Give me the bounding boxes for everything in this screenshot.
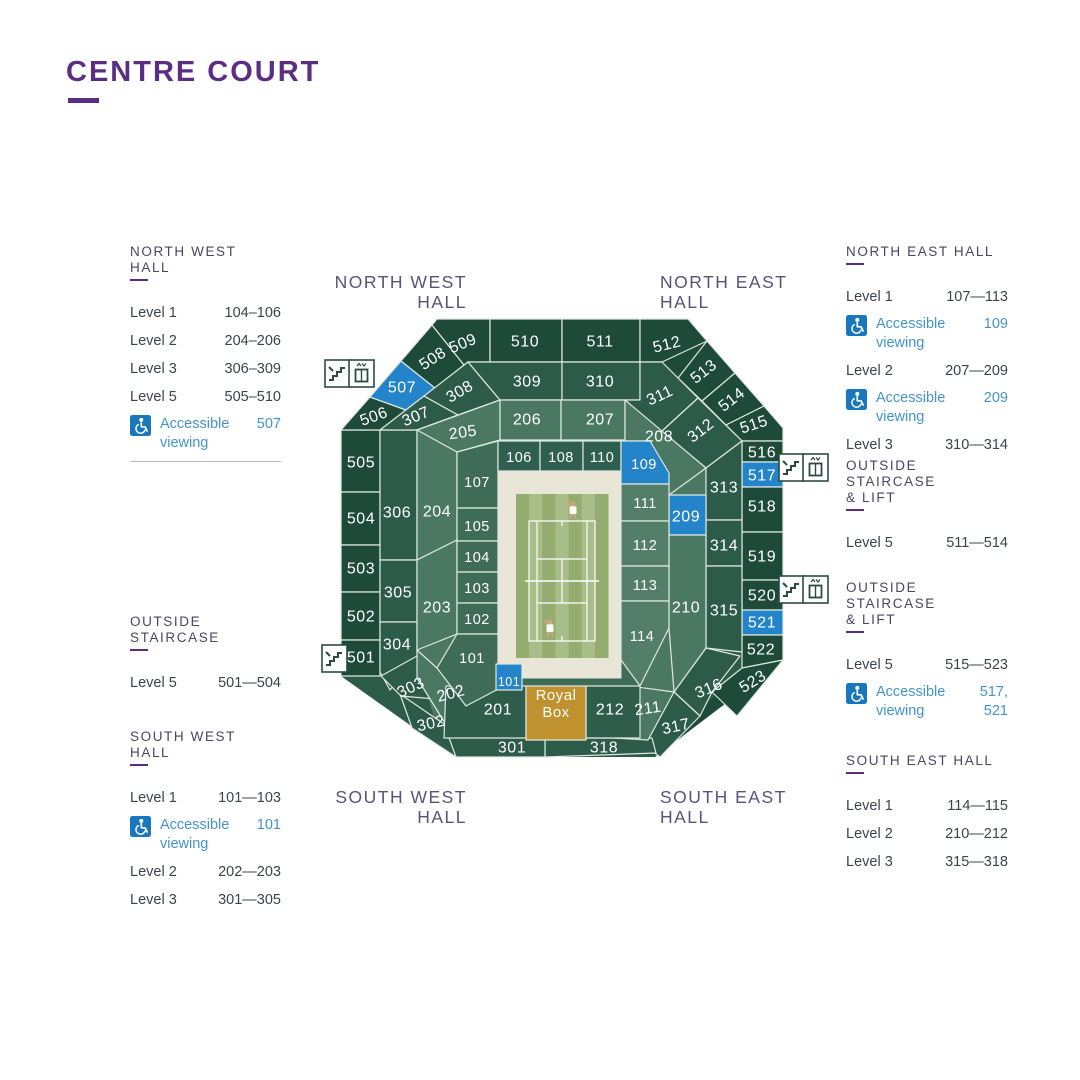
legend-row: Level 3310—314 bbox=[846, 435, 1008, 455]
accessible-label: Accessible viewing bbox=[160, 415, 244, 453]
section-label: 502 bbox=[347, 609, 375, 626]
accessible-label: Accessible viewing bbox=[876, 389, 960, 427]
centre-court-page: CENTRE COURT 505504503502501506507508509… bbox=[0, 0, 1080, 1080]
sections-range-value: 515—523 bbox=[945, 655, 1008, 675]
section-label: 521 bbox=[748, 615, 776, 632]
level-label: Level 1 bbox=[130, 303, 177, 323]
level-label: Level 5 bbox=[846, 533, 893, 553]
header-accent-dash bbox=[846, 631, 864, 633]
sections-range-value: 202—203 bbox=[218, 862, 281, 882]
lift-icon bbox=[803, 454, 828, 481]
section-label: 103 bbox=[464, 581, 490, 597]
section-label: 507 bbox=[388, 380, 416, 397]
stairs-icon bbox=[322, 645, 347, 672]
level-label: Level 5 bbox=[846, 655, 893, 675]
accessible-label: Accessible viewing bbox=[876, 315, 960, 353]
legend-row: Level 1107—113 bbox=[846, 287, 1008, 307]
legend-row: Level 2210—212 bbox=[846, 824, 1008, 844]
legend-divider bbox=[130, 461, 281, 462]
hall-label: SOUTH EAST HALL bbox=[660, 788, 860, 827]
legend-header: NORTH EAST HALL bbox=[846, 244, 1008, 265]
section-label: 511 bbox=[586, 334, 613, 351]
section-label: 206 bbox=[513, 412, 541, 429]
section-label: 520 bbox=[748, 588, 776, 605]
section-label: 209 bbox=[672, 509, 700, 526]
level-label: Level 3 bbox=[846, 435, 893, 455]
accessible-label: Accessible viewing bbox=[160, 816, 244, 854]
section-label: 106 bbox=[506, 450, 532, 466]
header-accent-dash bbox=[130, 649, 148, 651]
legend-group-right: OUTSIDE STAIRCASE & LIFTLevel 5511—514 bbox=[846, 458, 1008, 561]
accessible-sections-value: 517, 521 bbox=[955, 683, 1008, 721]
header-accent-dash bbox=[846, 772, 864, 774]
lift-icon bbox=[803, 576, 828, 603]
legend-header: OUTSIDE STAIRCASE & LIFT bbox=[846, 580, 1008, 633]
section-label: 108 bbox=[548, 450, 574, 466]
level-label: Level 3 bbox=[846, 852, 893, 872]
wheelchair-icon bbox=[846, 315, 867, 336]
section-label: 105 bbox=[464, 519, 490, 535]
level-label: Level 3 bbox=[130, 890, 177, 910]
accessible-viewing-row: Accessible viewing507 bbox=[130, 415, 281, 453]
section-label: 315 bbox=[710, 603, 738, 620]
section-label: 313 bbox=[710, 480, 738, 497]
sections-range-value: 501—504 bbox=[218, 673, 281, 693]
section-label: 501 bbox=[347, 650, 375, 667]
sections-range-value: 104–106 bbox=[225, 303, 281, 323]
header-accent-dash bbox=[130, 279, 148, 281]
accessible-sections-value: 209 bbox=[984, 389, 1008, 427]
legend-row: Level 1104–106 bbox=[130, 303, 281, 323]
wheelchair-icon bbox=[846, 683, 867, 704]
section-label: 208 bbox=[645, 429, 673, 446]
legend-group-left: OUTSIDE STAIRCASELevel 5501—504 bbox=[130, 614, 281, 701]
section-label: 207 bbox=[586, 412, 614, 429]
legend-row: Level 5515—523 bbox=[846, 655, 1008, 675]
section-label: 102 bbox=[464, 612, 490, 628]
section-306[interactable] bbox=[380, 430, 417, 560]
legend-header: OUTSIDE STAIRCASE & LIFT bbox=[846, 458, 1008, 511]
grass-stripe bbox=[529, 494, 543, 658]
wheelchair-icon bbox=[846, 389, 867, 410]
accessible-viewing-row: Accessible viewing109 bbox=[846, 315, 1008, 353]
section-label: 503 bbox=[347, 561, 375, 578]
stairs-icon bbox=[779, 454, 804, 481]
sections-range-value: 107—113 bbox=[946, 287, 1008, 307]
section-label: 204 bbox=[423, 504, 451, 521]
section-label: 504 bbox=[347, 511, 375, 528]
section-label: 304 bbox=[383, 637, 411, 654]
legend-header: SOUTH EAST HALL bbox=[846, 753, 1008, 774]
sections-range-value: 315—318 bbox=[945, 852, 1008, 872]
section-label: 306 bbox=[383, 505, 411, 522]
section-label: 109 bbox=[631, 457, 657, 473]
sections-range-value: 511—514 bbox=[946, 533, 1008, 553]
sections-range-value: 301—305 bbox=[218, 890, 281, 910]
level-label: Level 2 bbox=[846, 361, 893, 381]
section-label: 111 bbox=[633, 496, 657, 512]
level-label: Level 2 bbox=[130, 862, 177, 882]
legend-row: Level 1114—115 bbox=[846, 796, 1008, 816]
legend-row: Level 2207—209 bbox=[846, 361, 1008, 381]
grass-stripe bbox=[516, 494, 530, 658]
sections-range-value: 505–510 bbox=[225, 387, 281, 407]
legend-group-right: NORTH EAST HALLLevel 1107—113Accessible … bbox=[846, 244, 1008, 463]
hall-label: NORTH EAST HALL bbox=[660, 273, 860, 312]
legend-row: Level 2202—203 bbox=[130, 862, 281, 882]
grass-stripe bbox=[595, 494, 609, 658]
level-label: Level 5 bbox=[130, 387, 177, 407]
sections-range-value: 101—103 bbox=[218, 788, 281, 808]
legend-row: Level 5505–510 bbox=[130, 387, 281, 407]
accessible-label: Accessible viewing bbox=[876, 683, 955, 721]
accessible-sections-value: 101 bbox=[257, 816, 281, 854]
legend-row: Level 1101—103 bbox=[130, 788, 281, 808]
section-label: 107 bbox=[464, 475, 490, 491]
legend-row: Level 5511—514 bbox=[846, 533, 1008, 553]
section-label: 510 bbox=[511, 334, 539, 351]
section-label: 518 bbox=[748, 499, 776, 516]
section-label: 212 bbox=[596, 702, 624, 719]
legend-group-left: NORTH WEST HALLLevel 1104–106Level 2204–… bbox=[130, 244, 281, 462]
header-accent-dash bbox=[130, 764, 148, 766]
section-label: 301 bbox=[498, 740, 526, 757]
sections-range-value: 204–206 bbox=[225, 331, 281, 351]
section-label: 517 bbox=[748, 468, 776, 485]
wheelchair-icon bbox=[130, 415, 151, 436]
legend-row: Level 3301—305 bbox=[130, 890, 281, 910]
grass-stripe bbox=[582, 494, 596, 658]
level-label: Level 3 bbox=[130, 359, 177, 379]
legend-row: Level 2204–206 bbox=[130, 331, 281, 351]
legend-group-right: SOUTH EAST HALLLevel 1114—115Level 2210—… bbox=[846, 753, 1008, 880]
section-label: 114 bbox=[630, 629, 655, 645]
section-label: 201 bbox=[484, 702, 512, 719]
level-label: Level 2 bbox=[130, 331, 177, 351]
grass-stripe bbox=[542, 494, 556, 658]
level-label: Level 1 bbox=[846, 287, 893, 307]
sections-range-value: 306–309 bbox=[225, 359, 281, 379]
section-203[interactable] bbox=[417, 540, 457, 650]
level-label: Level 5 bbox=[130, 673, 177, 693]
section-label: 203 bbox=[423, 600, 451, 617]
level-label: Level 1 bbox=[130, 788, 177, 808]
section-label: 314 bbox=[710, 538, 738, 555]
sections-range-value: 114—115 bbox=[947, 796, 1008, 816]
legend-header: NORTH WEST HALL bbox=[130, 244, 281, 281]
accessible-viewing-row: Accessible viewing101 bbox=[130, 816, 281, 854]
legend-group-left: SOUTH WEST HALLLevel 1101—103Accessible … bbox=[130, 729, 281, 918]
stairs-icon bbox=[325, 360, 350, 387]
legend-row: Level 5501—504 bbox=[130, 673, 281, 693]
legend-header: SOUTH WEST HALL bbox=[130, 729, 281, 766]
level-label: Level 2 bbox=[846, 824, 893, 844]
legend-row: Level 3306–309 bbox=[130, 359, 281, 379]
sections-range-value: 207—209 bbox=[945, 361, 1008, 381]
stairs-icon bbox=[779, 576, 804, 603]
wheelchair-icon bbox=[130, 816, 151, 837]
section-label: 112 bbox=[633, 538, 658, 554]
section-label: 104 bbox=[464, 550, 490, 566]
sections-range-value: 310—314 bbox=[945, 435, 1008, 455]
level-label: Level 1 bbox=[846, 796, 893, 816]
section-label: 519 bbox=[748, 549, 776, 566]
section-label: 318 bbox=[590, 740, 618, 757]
accessible-sections-value: 109 bbox=[984, 315, 1008, 353]
section-label: 210 bbox=[672, 600, 700, 617]
accessible-viewing-row: Accessible viewing209 bbox=[846, 389, 1008, 427]
section-label: 113 bbox=[633, 578, 658, 594]
hall-label: NORTH WEST HALL bbox=[267, 273, 467, 312]
section-label: 305 bbox=[384, 585, 412, 602]
section-204[interactable] bbox=[417, 430, 457, 560]
section-label: 310 bbox=[586, 374, 614, 391]
legend-row: Level 3315—318 bbox=[846, 852, 1008, 872]
header-accent-dash bbox=[846, 509, 864, 511]
section-label: 522 bbox=[747, 642, 775, 659]
sections-range-value: 210—212 bbox=[945, 824, 1008, 844]
section-label: 505 bbox=[347, 455, 375, 472]
section-label: 516 bbox=[748, 445, 776, 462]
hall-label: SOUTH WEST HALL bbox=[267, 788, 467, 827]
legend-header: OUTSIDE STAIRCASE bbox=[130, 614, 281, 651]
section-label: 110 bbox=[590, 450, 615, 466]
header-accent-dash bbox=[846, 263, 864, 265]
accessible-viewing-row: Accessible viewing517, 521 bbox=[846, 683, 1008, 721]
section-label: 309 bbox=[513, 374, 541, 391]
lift-icon bbox=[349, 360, 374, 387]
accessible-sections-value: 507 bbox=[257, 415, 281, 453]
section-label: 101 bbox=[498, 675, 520, 689]
legend-group-right: OUTSIDE STAIRCASE & LIFTLevel 5515—523Ac… bbox=[846, 580, 1008, 729]
section-label: 101 bbox=[459, 651, 485, 667]
